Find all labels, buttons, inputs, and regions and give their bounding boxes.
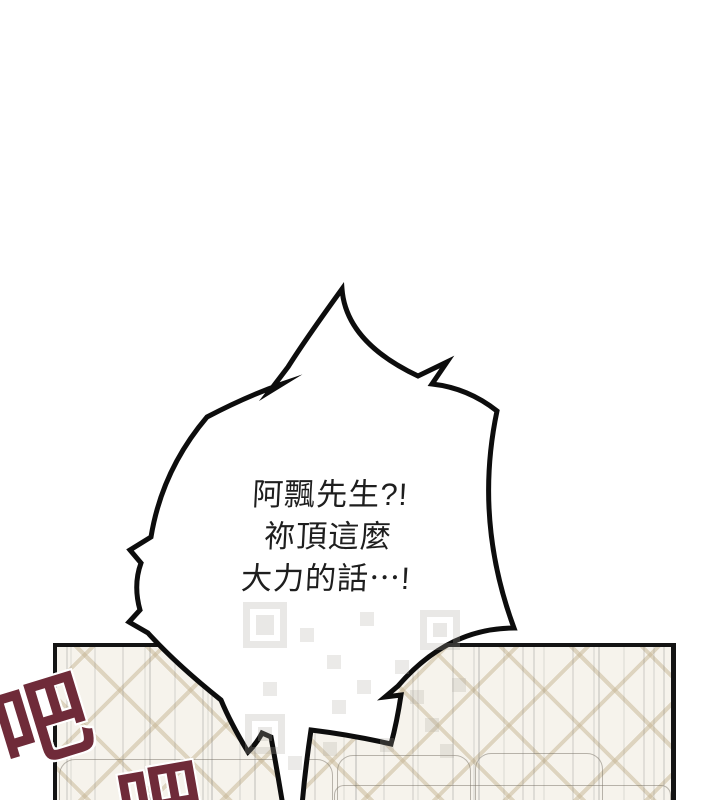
dialogue-line: 祢頂這麼 (187, 516, 469, 558)
dialogue-line: 阿飄先生?! (189, 474, 471, 516)
dialogue-text: 阿飄先生?! 祢頂這麼 大力的話⋯! (185, 474, 472, 600)
comic-page: 吧 吧 阿飄先生?! 祢頂這麼 大力的話⋯! (0, 0, 720, 800)
dialogue-line: 大力的話⋯! (185, 558, 467, 600)
speech-bubble (0, 0, 720, 800)
